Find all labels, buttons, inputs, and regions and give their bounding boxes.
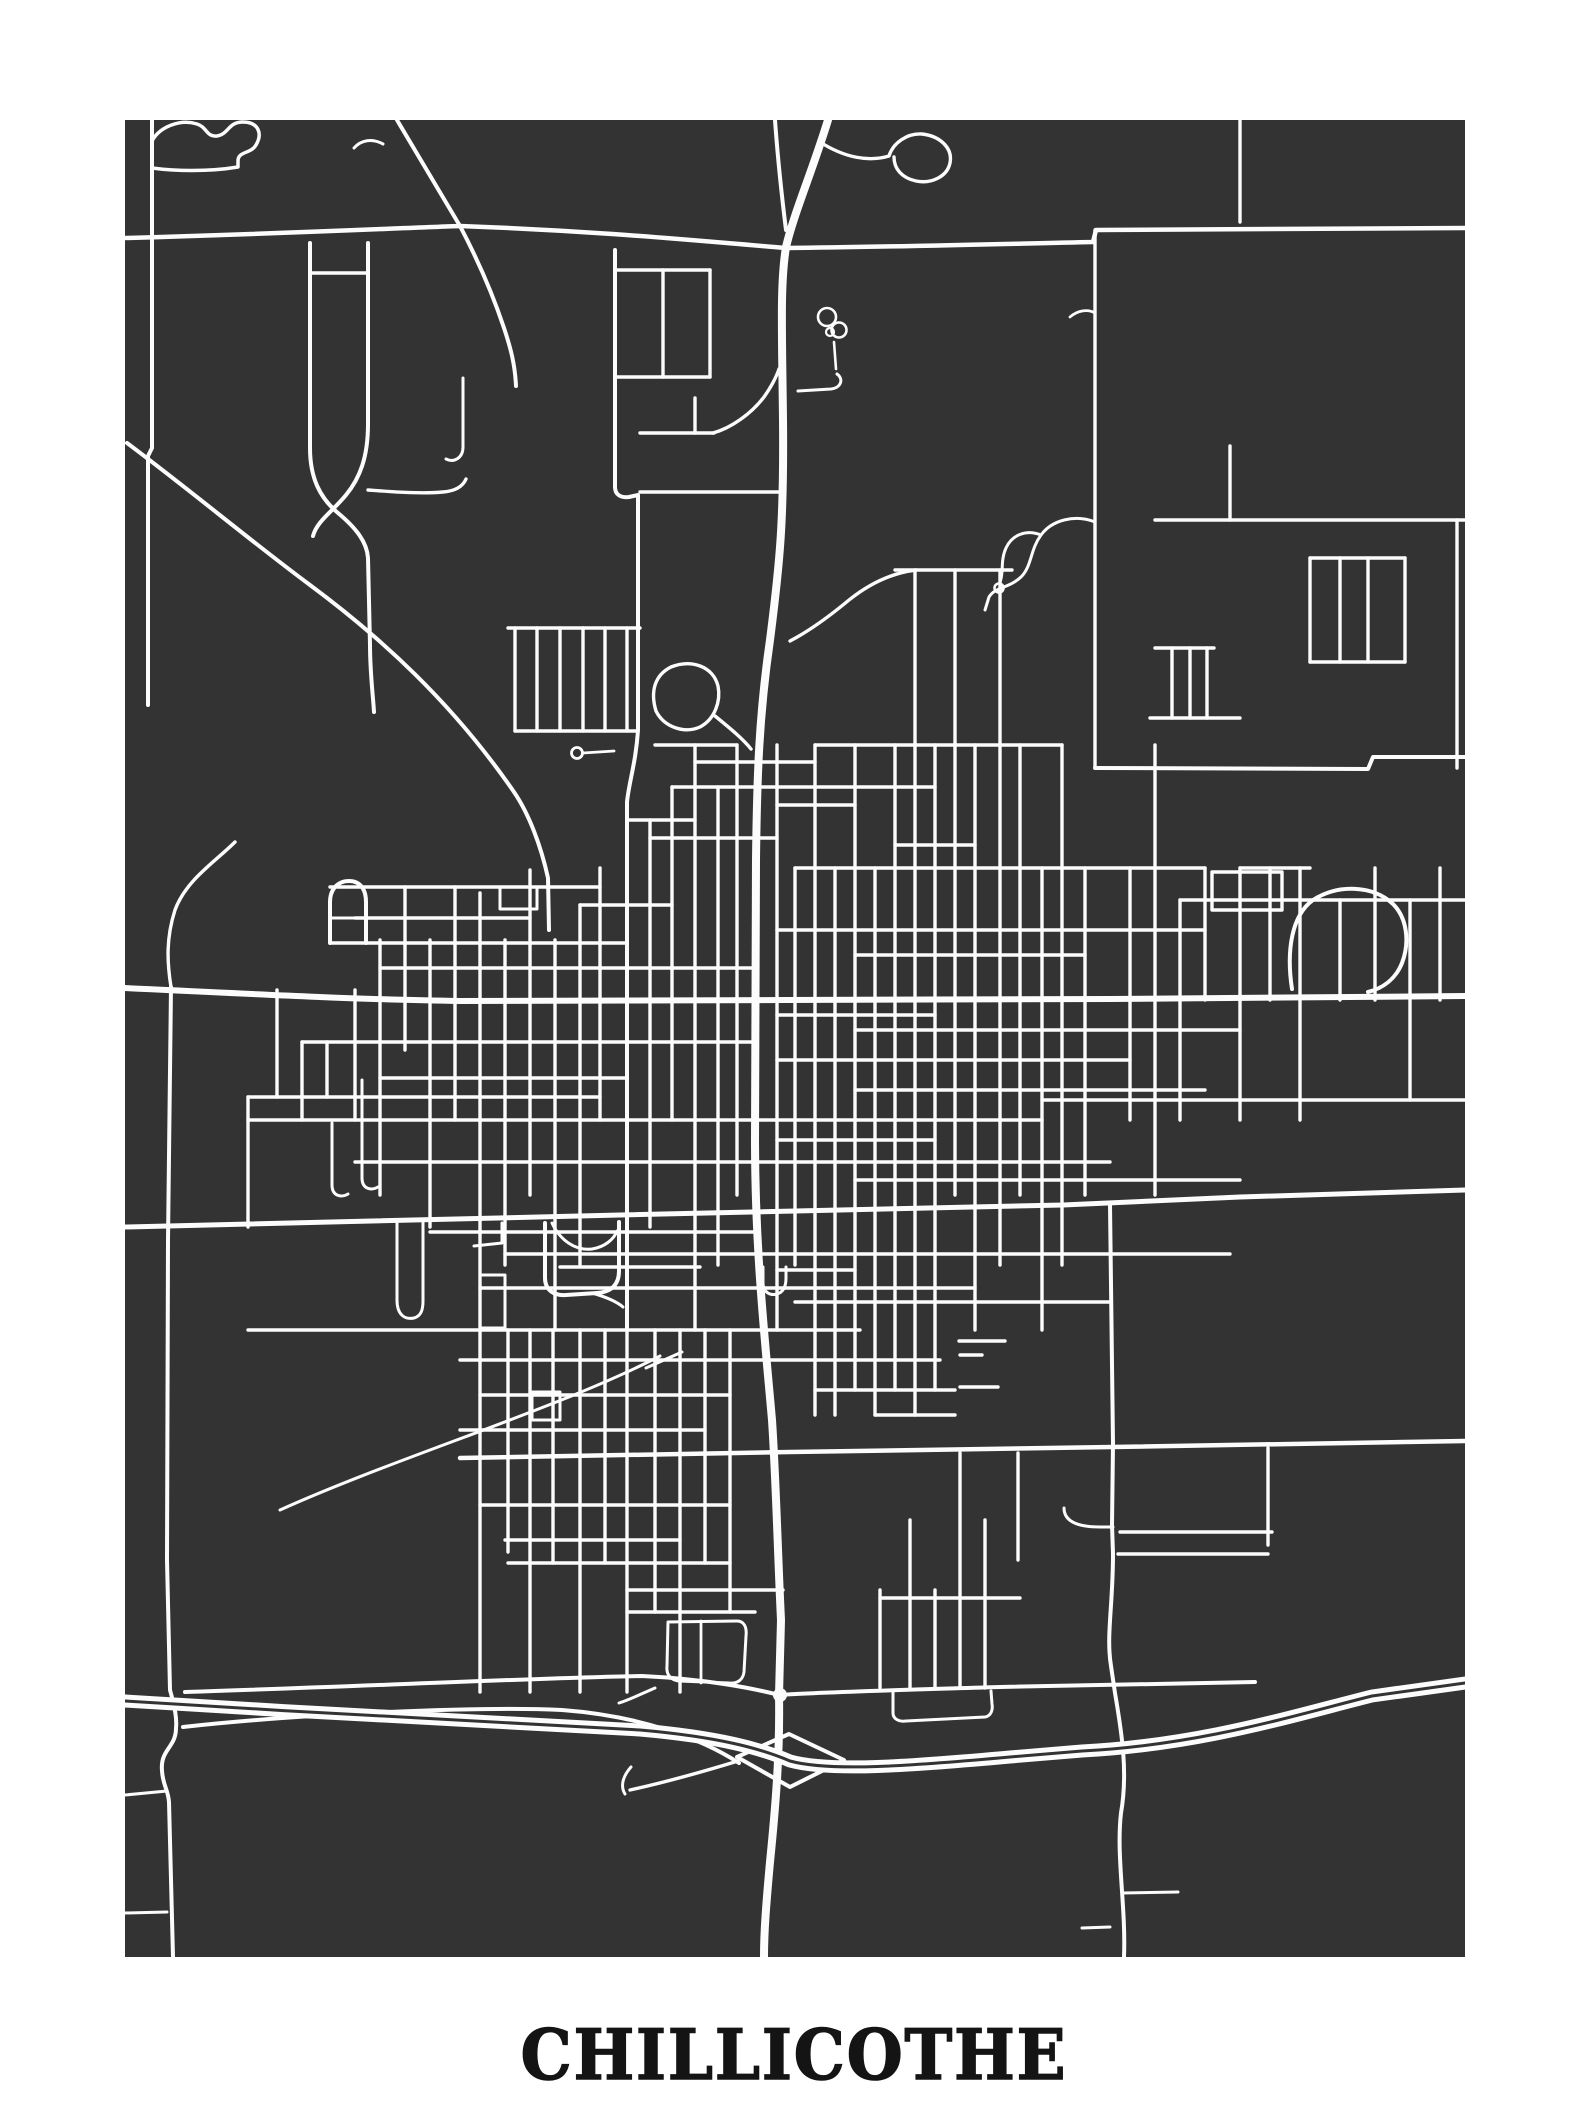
street-minor xyxy=(125,1912,167,1913)
city-title: CHILLICOTHE xyxy=(56,2000,1533,2110)
map-poster: CHILLICOTHE xyxy=(0,0,1588,2117)
street-minor xyxy=(583,751,614,753)
street-minor xyxy=(1082,1927,1110,1928)
street-minor xyxy=(1123,1892,1178,1893)
interchange-node xyxy=(773,1688,787,1702)
city-map xyxy=(0,0,1588,2117)
